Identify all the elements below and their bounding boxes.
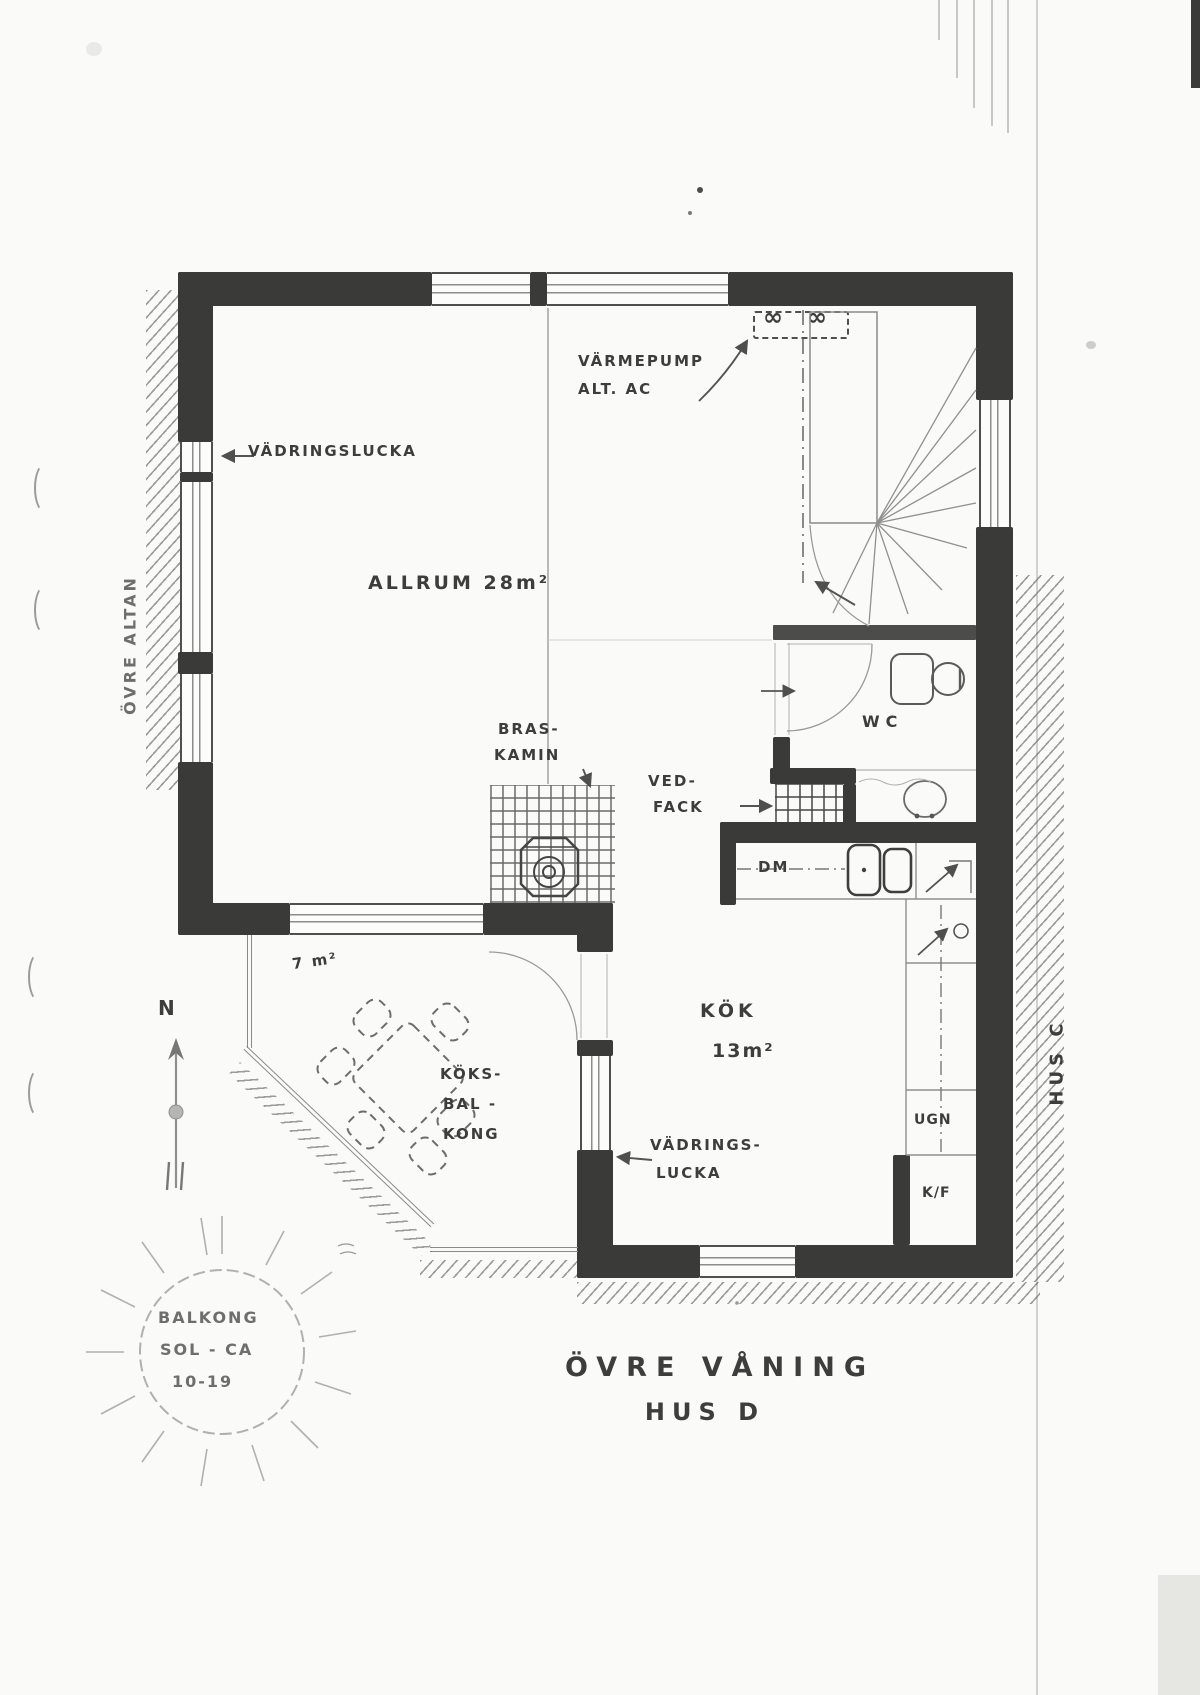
corner-cabinet-sink [926, 861, 971, 893]
braskamin-arrow [583, 769, 590, 786]
label-koksbalkong-1: KÖKS- [440, 1065, 502, 1083]
chair [427, 999, 472, 1044]
chair [313, 1043, 358, 1088]
staircase [803, 310, 976, 626]
label-koksbalkong-2: BAL - [443, 1095, 497, 1113]
kitchen-counter [736, 843, 976, 1155]
label-kok-area: 13m² [712, 1040, 775, 1062]
plan-title-line1: ÖVRE VÅNING [565, 1352, 875, 1383]
balcony-furniture [313, 995, 478, 1178]
corner-cabinet-stove [918, 924, 968, 955]
pencil-marks [338, 1244, 739, 1305]
floor-plan-scan: ∞ ∞ [0, 0, 1200, 1695]
label-compass-n: N [158, 996, 177, 1020]
label-vadringslucka-kok-1: VÄDRINGS- [650, 1136, 762, 1154]
label-vedfack-2: FACK [653, 798, 704, 816]
label-braskamin-2: KAMIN [494, 746, 560, 764]
compass-arrow [167, 1038, 184, 1190]
chair [349, 995, 394, 1040]
label-vedfack-1: VED- [648, 772, 697, 790]
fireplace-hearth [490, 785, 615, 903]
wc-door [761, 643, 872, 735]
label-dm: DM [758, 858, 789, 876]
label-kf: K/F [922, 1185, 951, 1201]
chair [343, 1107, 388, 1152]
toilet [891, 654, 964, 704]
label-ovre-altan: ÖVRE ALTAN [121, 575, 140, 715]
label-varmepump-2: ALT. AC [578, 380, 652, 398]
wash-basin [856, 770, 976, 818]
varmepump-arrow [699, 341, 747, 401]
label-ugn: UGN [914, 1112, 952, 1128]
kok-lucka-arrow [618, 1157, 652, 1160]
label-hus-c: HUS C [1047, 1018, 1068, 1105]
label-kok: KÖK [700, 1000, 757, 1022]
label-sun-1: BALKONG [158, 1308, 259, 1327]
label-allrum: ALLRUM 28m² [368, 572, 550, 594]
label-braskamin-1: BRAS- [498, 720, 560, 738]
label-wc: WC [862, 712, 903, 731]
kitchen-sink [848, 845, 911, 895]
label-sun-2: SOL - CA [160, 1340, 253, 1359]
label-vadringslucka-top: VÄDRINGSLUCKA [248, 442, 417, 460]
balcony-door [489, 952, 607, 1040]
label-vadringslucka-kok-2: LUCKA [656, 1164, 721, 1182]
plan-title-line2: HUS D [645, 1398, 765, 1426]
label-varmepump-1: VÄRMEPUMP [578, 352, 704, 370]
label-sun-3: 10-19 [172, 1372, 233, 1391]
label-koksbalkong-3: KONG [443, 1125, 500, 1143]
